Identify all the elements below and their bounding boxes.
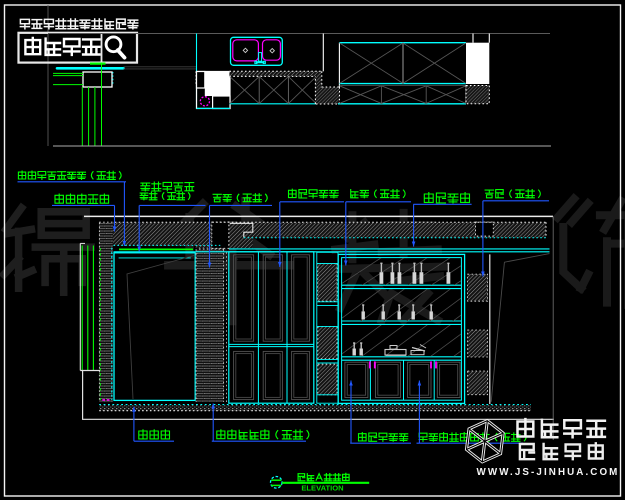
svg-text:ELEVATION: ELEVATION — [301, 484, 343, 493]
svg-text:WWW.JS-JINHUA.COM: WWW.JS-JINHUA.COM — [477, 467, 620, 478]
